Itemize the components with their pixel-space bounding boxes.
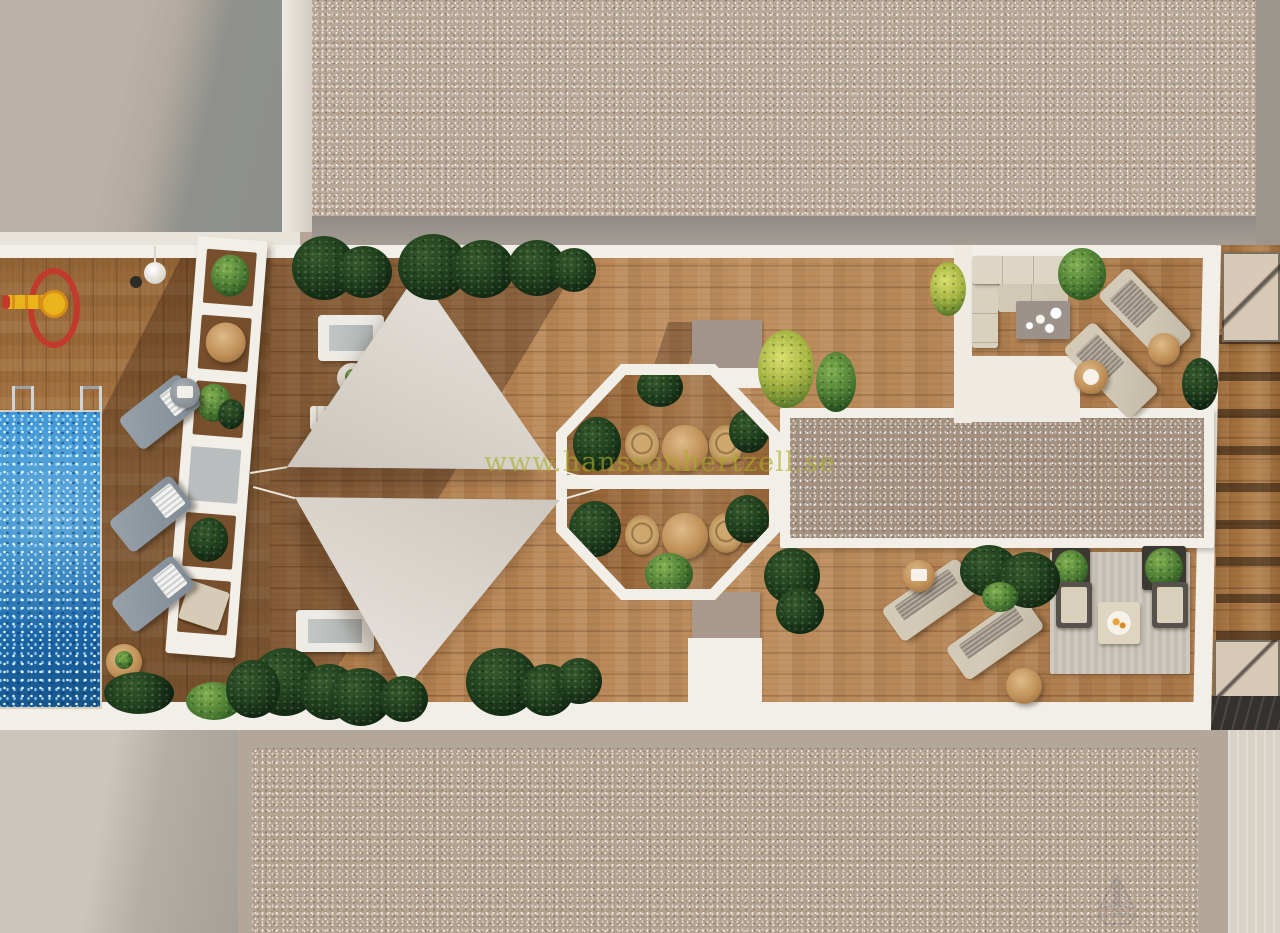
rooftop-render: www.hanssonhertzell.se: [0, 0, 1280, 933]
walkway-bottom: [688, 638, 762, 704]
top-right-concrete-strip: [1256, 0, 1280, 246]
towel: [177, 386, 193, 398]
coffee-table: [1016, 301, 1070, 339]
octagon-bush: [637, 367, 683, 407]
tree-canopy: [556, 658, 602, 704]
yucca-plant: [930, 262, 966, 316]
top-roof-divider-strip: [282, 0, 312, 232]
neighbor-stair-landing-top: [1222, 252, 1280, 342]
top-left-concrete-roof: [0, 0, 282, 234]
potted-plant: [217, 398, 245, 430]
octagon-bush: [645, 553, 693, 595]
terrace-border-bottom: [0, 702, 1216, 730]
armchair-left: [1056, 582, 1092, 628]
deck-lamp: [144, 262, 166, 284]
toy-seat: [40, 290, 68, 318]
top-gravel-roof: [312, 0, 1256, 216]
potted-plant: [209, 253, 250, 298]
kids-spring-toy: [2, 264, 72, 348]
watermark-sailboat-icon: [1094, 870, 1140, 926]
octagon-bush: [725, 495, 769, 543]
bottom-left-concrete-roof: [0, 730, 240, 933]
sofa-back: [972, 256, 1068, 284]
glossy-plant: [776, 588, 824, 634]
pool-ladder-right: [80, 386, 102, 412]
potted-plant: [187, 516, 230, 563]
pergola-slot-plant-2: [192, 380, 246, 438]
shrub: [1058, 248, 1106, 300]
stair-fragment: [1206, 696, 1280, 730]
yucca-plant: [758, 330, 814, 408]
watermark-url: www.hanssonhertzell.se: [484, 447, 836, 478]
toy-beam-cap-left: [2, 295, 10, 309]
lounge-coffee-table: [1098, 602, 1140, 644]
tree-canopy: [552, 248, 596, 292]
bottom-gravel-roof: [252, 748, 1198, 933]
pergola-slot-table: [198, 315, 252, 373]
roof-skylight-strip: [780, 408, 1214, 548]
neighbor-stair-landing-bottom: [1214, 640, 1280, 698]
armchair-right: [1152, 582, 1188, 628]
lounge-tray: [1107, 611, 1131, 635]
pool-ladder-left: [12, 386, 34, 412]
shrub: [1182, 358, 1218, 410]
side-table-2: [1074, 360, 1108, 394]
deck-plant: [104, 672, 174, 714]
bistro-chair: [625, 515, 659, 555]
pergola-slot-plant-3: [182, 512, 236, 570]
round-table: [204, 321, 247, 364]
side-table-1: [1148, 333, 1180, 365]
tray: [1083, 369, 1099, 385]
skylight-gravel-infill: [790, 418, 1204, 538]
octagon-bush: [569, 501, 621, 557]
table-plant: [115, 651, 133, 669]
pergola-slot-plant-1: [203, 249, 257, 307]
deck-speaker-ball: [130, 276, 142, 288]
neighbor-pergola-slat-shadows: [1216, 335, 1280, 645]
watermark-text: www.hanssonhertzell.se: [484, 447, 1004, 478]
pergola-slot-panel: [187, 446, 241, 504]
deck-plant: [226, 660, 280, 718]
white-floor-patch: [954, 356, 1080, 422]
octagonal-pergola: [556, 364, 780, 600]
bottom-right-concrete-roof: [1228, 730, 1280, 933]
tree-canopy: [452, 240, 514, 298]
poolside-side-table: [170, 378, 200, 408]
shrub: [816, 352, 856, 412]
side-table-4: [1006, 668, 1042, 704]
plant-cluster: [982, 582, 1018, 612]
swimming-pool: [0, 410, 102, 709]
tree-canopy: [336, 246, 392, 298]
pool-water-sparkle: [0, 412, 100, 707]
towel: [911, 569, 927, 581]
side-table-3: [903, 560, 935, 592]
tree-canopy: [380, 676, 428, 722]
